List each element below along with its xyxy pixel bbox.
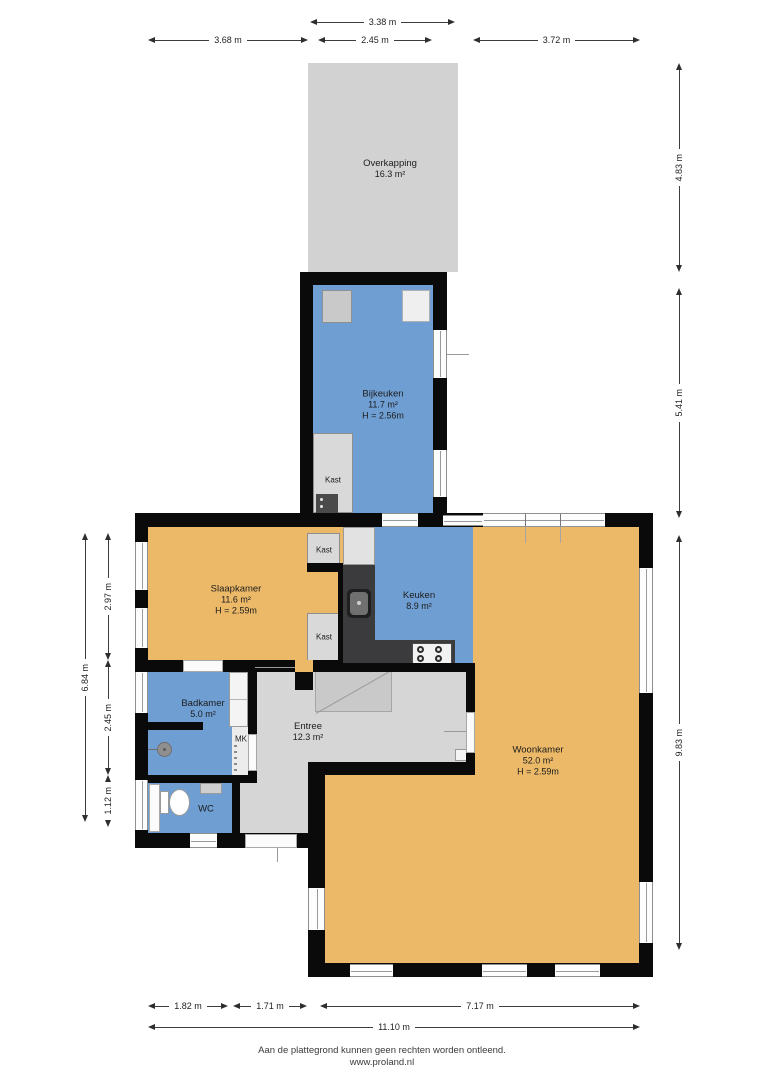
wc-label: WC bbox=[198, 804, 214, 815]
dim-left-slaapkamer: 2.97 m bbox=[102, 533, 114, 660]
slaapkamer-label: Slaapkamer 11.6 m² H = 2.59m bbox=[211, 584, 262, 617]
wc-sink-icon bbox=[200, 783, 222, 794]
mk-meter-dots bbox=[234, 745, 237, 771]
entree-label: Entree 12.3 m² bbox=[293, 721, 324, 743]
door-woonkamer-swing bbox=[444, 731, 466, 732]
kitchen-counter-white bbox=[343, 527, 375, 565]
wc-door bbox=[149, 784, 160, 832]
front-door-leaf bbox=[277, 848, 278, 862]
dim-bottom-2: 1.71 m bbox=[233, 1000, 307, 1012]
boiler-dot bbox=[320, 505, 323, 508]
window-mullion-tick bbox=[525, 527, 526, 543]
dim-right-house: 9.83 m bbox=[673, 535, 685, 950]
dim-top-right: 3.72 m bbox=[473, 34, 640, 46]
badkamer-label: Badkamer 5.0 m² bbox=[181, 698, 224, 720]
door-slaapkamer-opening bbox=[295, 660, 313, 672]
dim-right-overkapping: 4.83 m bbox=[673, 63, 685, 272]
wall-kast-stub-top bbox=[307, 563, 343, 572]
dim-overkapping-width: 3.38 m bbox=[310, 16, 455, 28]
wall-keuken-bottom bbox=[343, 663, 475, 672]
wall-left-woonkamer-lower bbox=[308, 762, 325, 977]
shower-head-dot bbox=[163, 748, 166, 751]
dim-right-bijkeuken: 5.41 m bbox=[673, 288, 685, 518]
window-bijkeuken-right-1 bbox=[433, 330, 447, 378]
door-bijkeuken-keuken bbox=[382, 513, 418, 527]
window-left-slaapkamer-1 bbox=[135, 542, 148, 590]
wall-slaapkamer-bottom-b bbox=[223, 660, 295, 672]
window-bottom-1 bbox=[350, 964, 393, 977]
window-left-slaapkamer-2 bbox=[135, 608, 148, 648]
window-top-woonkamer bbox=[483, 513, 605, 527]
wall-entree-stub bbox=[295, 672, 313, 690]
washer-icon bbox=[322, 290, 352, 323]
dim-top-middle: 2.45 m bbox=[318, 34, 432, 46]
front-door bbox=[245, 834, 297, 848]
kast-bijkeuken-label: Kast bbox=[325, 475, 341, 486]
woonkamer-floor-lower bbox=[325, 775, 473, 963]
mk-label: MK bbox=[235, 734, 247, 745]
window-under-wc bbox=[190, 833, 217, 848]
window-bijkeuken-right-2 bbox=[433, 450, 447, 497]
wall-entree-woonkamer-h bbox=[325, 762, 475, 775]
window-mullion-tick bbox=[560, 527, 561, 543]
window-bottom-3 bbox=[555, 964, 600, 977]
door-slaapkamer-leaf bbox=[255, 667, 295, 668]
window-mullion bbox=[560, 514, 561, 526]
wall-slaapkamer-bottom-a bbox=[148, 660, 183, 672]
bathroom-cabinet-divider bbox=[230, 699, 247, 700]
dim-left-wc: 1.12 m bbox=[102, 775, 114, 822]
window-left-wc bbox=[135, 780, 148, 830]
dim-left-total: 6.84 m bbox=[79, 533, 91, 822]
window-top-keuken bbox=[443, 515, 483, 526]
wall-badkamer-inner bbox=[148, 722, 203, 730]
window-right-lower bbox=[639, 882, 653, 943]
dim-top-left: 3.68 m bbox=[148, 34, 308, 46]
floorplan: Overkapping 16.3 m² Bijkeuken 11.7 m² H … bbox=[0, 0, 764, 1080]
bijkeuken-label: Bijkeuken 11.7 m² H = 2.56m bbox=[362, 389, 404, 422]
woonkamer-label: Woonkamer 52.0 m² H = 2.59m bbox=[512, 745, 563, 778]
dim-left-badkamer: 2.45 m bbox=[102, 660, 114, 775]
window-woonkamer-left bbox=[308, 888, 325, 930]
dim-bottom-total: 11.10 m bbox=[148, 1021, 640, 1033]
stove-icon bbox=[412, 643, 452, 665]
website-text: www.proland.nl bbox=[0, 1057, 764, 1069]
kast-boven-label: Kast bbox=[316, 545, 332, 556]
boiler-unit bbox=[316, 494, 338, 513]
wall-wc-top bbox=[148, 775, 257, 783]
sink-drain bbox=[357, 601, 361, 605]
wall-bijkeuken-top bbox=[300, 272, 447, 285]
kast-onder-label: Kast bbox=[316, 632, 332, 643]
keuken-label: Keuken 8.9 m² bbox=[403, 590, 435, 612]
toilet-tank bbox=[160, 791, 169, 814]
wall-wc-right bbox=[232, 783, 240, 833]
window-mullion bbox=[525, 514, 526, 526]
appliance-icon bbox=[402, 290, 430, 322]
door-woonkamer bbox=[466, 712, 475, 753]
stairs-icon bbox=[315, 668, 392, 712]
bijkeuken-door-swing bbox=[447, 354, 469, 355]
toilet-icon bbox=[169, 789, 190, 816]
wall-bijkeuken-left bbox=[300, 272, 313, 513]
disclaimer-text: Aan de plattegrond kunnen geen rechten w… bbox=[0, 1045, 764, 1057]
dim-bottom-1: 1.82 m bbox=[148, 1000, 228, 1012]
door-badkamer bbox=[183, 660, 223, 672]
window-bottom-2 bbox=[482, 964, 527, 977]
dim-bottom-3: 7.17 m bbox=[320, 1000, 640, 1012]
overkapping-label: Overkapping 16.3 m² bbox=[363, 158, 417, 180]
wall-kast-column bbox=[338, 563, 343, 672]
door-mk bbox=[248, 734, 257, 771]
window-right-upper bbox=[639, 568, 653, 693]
window-left-badkamer bbox=[135, 672, 148, 713]
boiler-dot bbox=[320, 498, 323, 501]
